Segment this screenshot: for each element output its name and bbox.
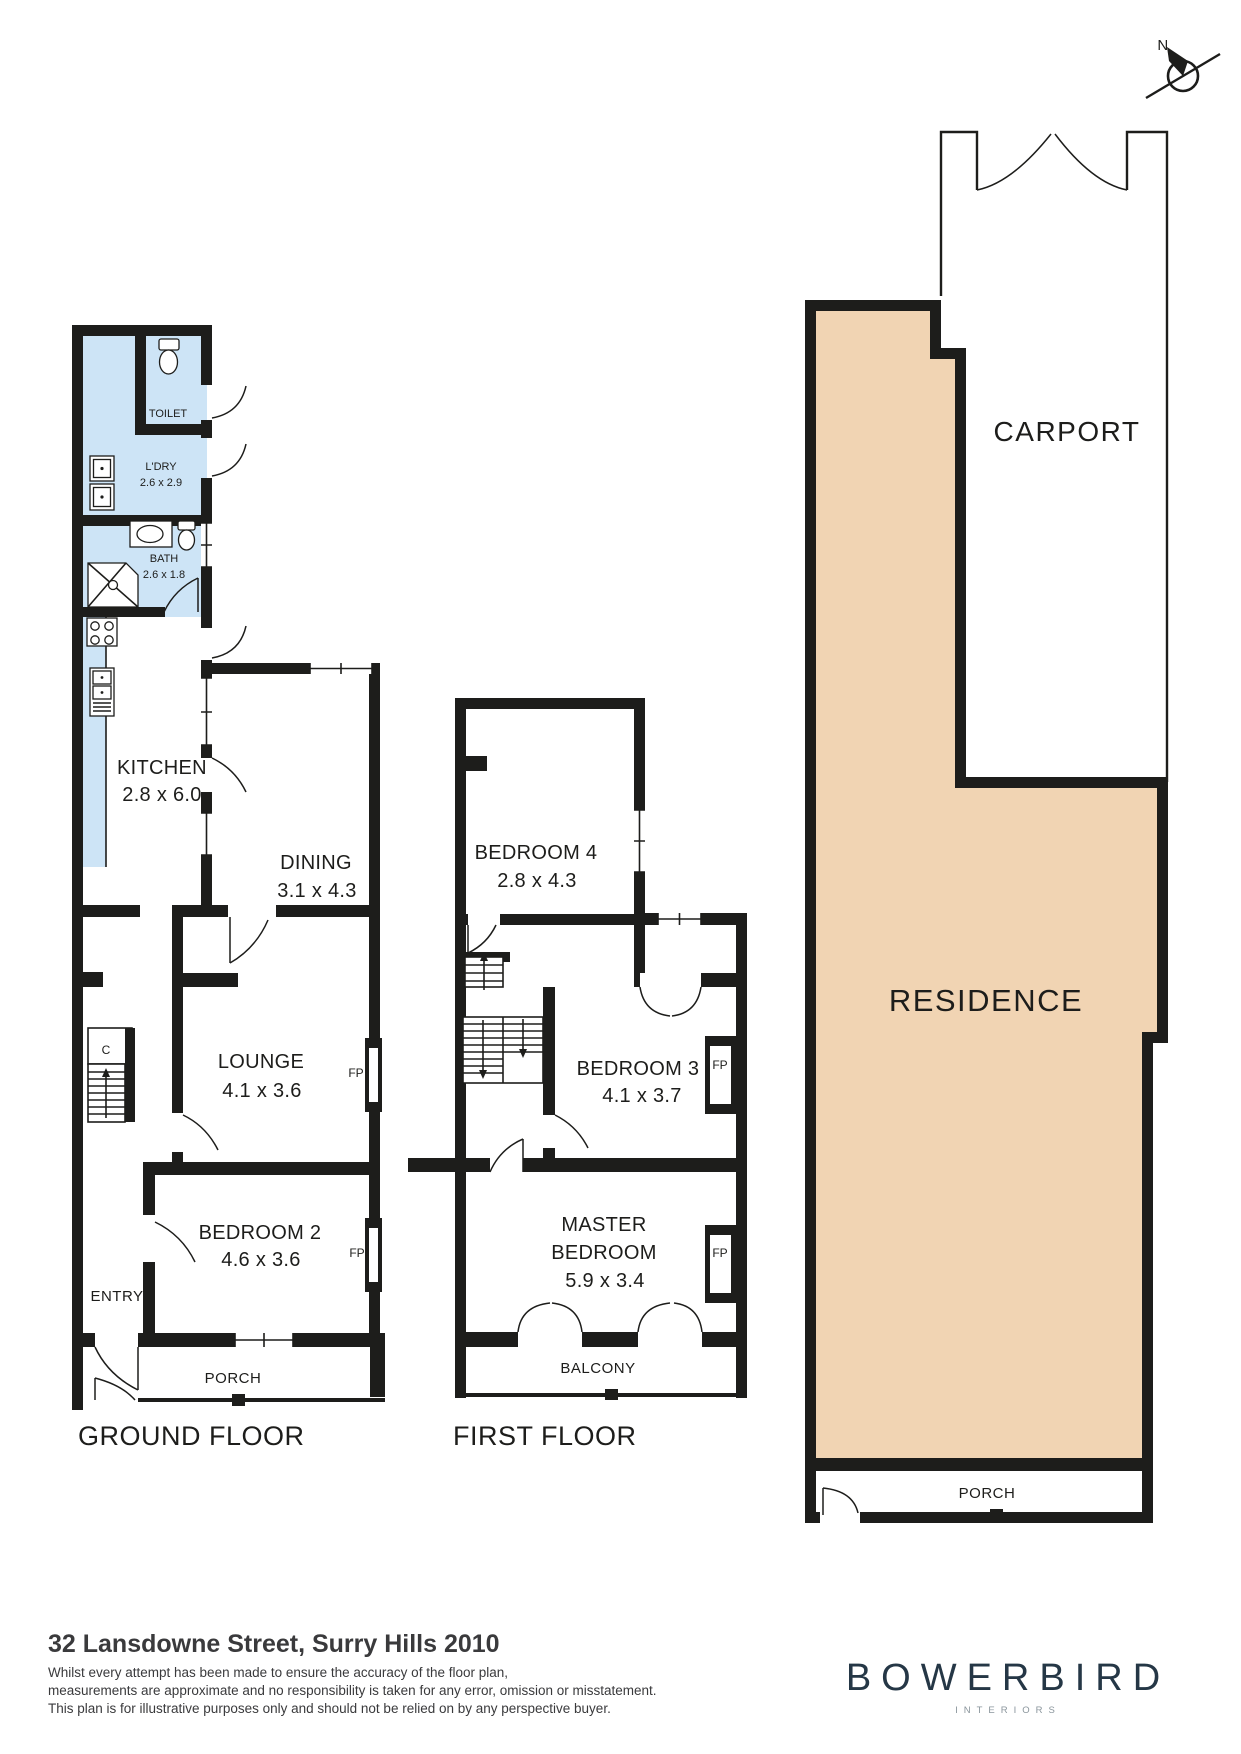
site-porch-label: PORCH	[959, 1485, 1016, 1502]
door-arc	[212, 444, 246, 476]
fireplace-label: FP	[712, 1246, 727, 1260]
carport-wall-right	[1127, 132, 1167, 782]
balcony-column	[605, 1389, 618, 1400]
wall-bedroom2-left	[143, 1262, 155, 1333]
bedroom4-dims: 2.8 x 4.3	[497, 870, 576, 892]
shower-icon	[88, 563, 138, 607]
wall-bedroom4-top	[455, 698, 645, 709]
ground-floor-title: GROUND FLOOR	[78, 1421, 305, 1451]
wall	[172, 1152, 183, 1162]
disclaimer-line: measurements are approximate and no resp…	[48, 1683, 657, 1698]
brand-logo-subtitle: INTERIORS	[955, 1705, 1061, 1716]
fireplace	[705, 1225, 736, 1303]
fireplace-label: FP	[348, 1066, 363, 1080]
carport-wall-left	[941, 132, 977, 296]
door-arc	[212, 386, 246, 418]
dining-label: DINING	[280, 852, 352, 874]
fireplace	[705, 1036, 736, 1114]
address-title: 32 Lansdowne Street, Surry Hills 2010	[48, 1630, 500, 1658]
ground-floor-plan: TOILET L'DRY 2.6 x 2.9 BATH 2.6 x 1.8 KI…	[72, 325, 385, 1451]
carport-gate-arc-left	[977, 134, 1051, 190]
laundry-dims: 2.6 x 2.9	[140, 477, 182, 489]
porch-column	[990, 1509, 1003, 1522]
french-door-arc	[674, 1303, 702, 1332]
wall-toilet-bottom	[135, 424, 201, 435]
floor-plan-canvas: N CARPORT RESIDENCE PORCH	[0, 0, 1241, 1754]
wall-lounge-left	[172, 905, 183, 1113]
toilet-fixture-icon	[159, 339, 179, 374]
window	[201, 523, 212, 567]
carport-gate-arc-right	[1055, 134, 1127, 190]
french-door-arc	[638, 1303, 670, 1332]
stove-icon	[87, 618, 117, 646]
laundry-label: L'DRY	[145, 461, 177, 473]
door-arc	[490, 1139, 523, 1172]
residence-porch-wall	[805, 1458, 1153, 1471]
closet-label: C	[102, 1043, 111, 1057]
door-arc	[183, 1115, 218, 1150]
wall-master-bottom	[455, 1332, 518, 1347]
window	[201, 813, 212, 855]
wall	[276, 905, 369, 917]
entry-label: ENTRY	[90, 1288, 143, 1305]
window	[658, 913, 701, 925]
wall-pier	[83, 972, 103, 987]
kitchen-counter	[83, 617, 106, 867]
door-arc	[230, 920, 268, 963]
residence-label: RESIDENCE	[889, 983, 1083, 1018]
bath-label: BATH	[150, 553, 179, 565]
balcony-label: BALCONY	[560, 1360, 635, 1377]
wall	[634, 913, 658, 925]
wall-closet-right	[125, 1028, 135, 1122]
staircase-main	[463, 1017, 543, 1083]
window	[235, 1333, 293, 1347]
laundry-tub-icon	[90, 456, 114, 481]
fireplace	[365, 1038, 382, 1112]
compass-needle-icon	[1167, 47, 1188, 76]
first-floor-title: FIRST FLOOR	[453, 1421, 637, 1451]
porch-edge	[138, 1398, 385, 1402]
porch-label: PORCH	[205, 1370, 262, 1387]
wall	[72, 325, 212, 336]
residence-porch-door-gap	[820, 1511, 860, 1524]
first-floor-plan: BEDROOM 4 2.8 x 4.3 BEDROOM 3 4.1 x 3.7 …	[408, 698, 747, 1451]
door-arc	[95, 1378, 135, 1400]
disclaimer-line: This plan is for illustrative purposes o…	[48, 1701, 611, 1716]
wall	[500, 914, 634, 925]
door-arc	[468, 925, 496, 953]
door-arc	[555, 1115, 588, 1148]
bedroom4-label: BEDROOM 4	[475, 842, 598, 864]
site-plan: CARPORT RESIDENCE PORCH	[805, 132, 1167, 1524]
wall-bedroom3-left	[543, 987, 555, 1115]
wall-bedroom2-left	[143, 1175, 155, 1215]
wall-right	[736, 913, 747, 1398]
chimney	[463, 756, 487, 771]
french-door-arc	[672, 987, 701, 1016]
wall	[201, 420, 212, 438]
window	[201, 678, 212, 745]
door-arc	[212, 758, 246, 792]
window	[634, 810, 645, 872]
wall-lounge-bottom	[143, 1162, 380, 1175]
footer: 32 Lansdowne Street, Surry Hills 2010 Wh…	[48, 1630, 1170, 1716]
fireplace-label: FP	[712, 1058, 727, 1072]
wall	[72, 1333, 95, 1347]
laundry-tub-icon	[90, 484, 114, 510]
wall-bath-bottom	[83, 607, 165, 617]
wall	[701, 973, 736, 987]
french-door-arc	[518, 1303, 550, 1332]
fireplace-label: FP	[349, 1246, 364, 1260]
disclaimer-line: Whilst every attempt has been made to en…	[48, 1665, 508, 1680]
wall-master-bottom	[702, 1332, 747, 1347]
compass: N	[1146, 37, 1220, 98]
kitchen-dims: 2.8 x 6.0	[122, 784, 201, 806]
kitchen-label: KITCHEN	[117, 757, 207, 779]
bedroom2-dims: 4.6 x 3.6	[221, 1249, 300, 1271]
master-bedroom-label-line2: BEDROOM	[551, 1242, 656, 1264]
bedroom2-label: BEDROOM 2	[199, 1222, 322, 1244]
wall-toilet	[135, 336, 146, 435]
residence-outline	[811, 306, 1163, 1518]
toilet-label: TOILET	[149, 408, 188, 420]
master-bedroom-dims: 5.9 x 3.4	[565, 1270, 644, 1292]
wall	[138, 1333, 235, 1347]
bedroom3-dims: 4.1 x 3.7	[602, 1085, 681, 1107]
staircase	[88, 1064, 125, 1122]
wall	[543, 1148, 555, 1158]
carport-label: CARPORT	[994, 416, 1141, 447]
lounge-label: LOUNGE	[218, 1051, 304, 1073]
wall	[201, 792, 212, 813]
door-arc	[212, 626, 246, 658]
window	[310, 663, 372, 674]
fireplace	[365, 1218, 382, 1292]
toilet-fixture-icon	[178, 521, 195, 550]
porch-post	[370, 1333, 385, 1397]
wall-dining-top	[201, 663, 310, 674]
bedroom3-label: BEDROOM 3	[577, 1058, 700, 1080]
wall	[201, 478, 212, 523]
staircase-upper	[465, 952, 503, 990]
sink-icon	[90, 668, 114, 716]
door-arc	[95, 1347, 138, 1390]
wall	[372, 663, 380, 674]
lounge-dims: 4.1 x 3.6	[222, 1080, 301, 1102]
wall	[634, 698, 645, 810]
french-door-arc	[552, 1303, 582, 1332]
master-bedroom-label-line1: MASTER	[561, 1214, 646, 1236]
dining-dims: 3.1 x 4.3	[277, 880, 356, 902]
wall	[455, 914, 468, 925]
wall	[201, 567, 212, 628]
brand-logo: BOWERBIRD	[846, 1657, 1170, 1699]
vanity-basin-icon	[130, 521, 172, 547]
compass-north-label: N	[1157, 37, 1168, 54]
wall	[634, 973, 640, 987]
wall	[72, 325, 83, 1410]
wall-master-bottom	[582, 1332, 638, 1347]
wall-master-top	[523, 1158, 747, 1172]
balcony-edge	[455, 1393, 747, 1397]
french-door-arc	[640, 987, 670, 1016]
bath-dims: 2.6 x 1.8	[143, 569, 185, 581]
door-arc	[155, 1222, 195, 1262]
wall-master-top	[408, 1158, 490, 1172]
wall	[201, 325, 212, 385]
wall	[83, 905, 140, 917]
porch-column	[232, 1394, 245, 1406]
